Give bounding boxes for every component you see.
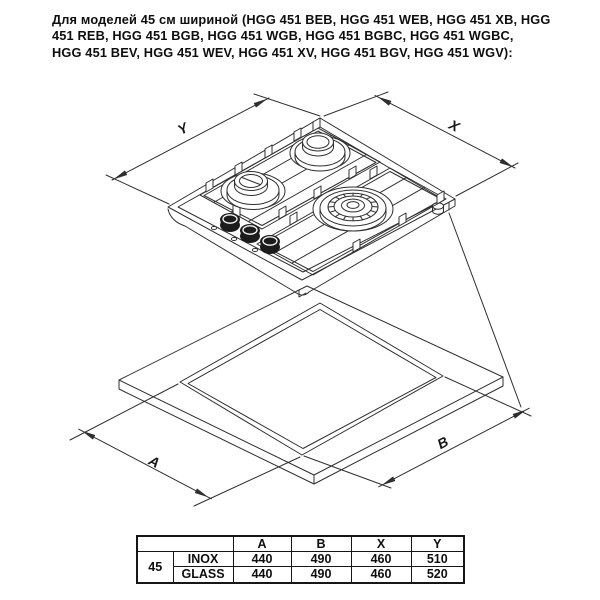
dimensions-table: A B X Y 45 INOX 440 490 460 510 GLASS 44…: [136, 535, 465, 584]
glass-x: 460: [351, 567, 411, 583]
table-row: GLASS 440 490 460 520: [137, 567, 464, 583]
installation-diagram: Y X A B: [0, 0, 600, 600]
dimension-label-x: X: [446, 116, 464, 136]
inox-y: 510: [411, 552, 464, 567]
dimension-label-b: B: [435, 433, 451, 452]
cutout: [180, 303, 443, 455]
manual-page: Для моделей 45 см шириной (HGG 451 BEB, …: [0, 0, 600, 600]
dimension-label-y: Y: [175, 119, 192, 138]
finish-cell-inox: INOX: [173, 552, 233, 567]
finish-cell-glass: GLASS: [173, 567, 233, 583]
glass-a: 440: [233, 567, 291, 583]
col-header-y: Y: [411, 536, 464, 552]
inox-x: 460: [351, 552, 411, 567]
table-row: 45 INOX 440 490 460 510: [137, 552, 464, 567]
inox-a: 440: [233, 552, 291, 567]
burner-wok: [320, 190, 386, 231]
glass-b: 490: [291, 567, 351, 583]
glass-y: 520: [411, 567, 464, 583]
table-corner-cell: [137, 536, 233, 552]
col-header-b: B: [291, 536, 351, 552]
dimension-line-a: [70, 384, 300, 506]
dimension-label-a: A: [145, 452, 162, 471]
col-header-x: X: [351, 536, 411, 552]
col-header-a: A: [233, 536, 291, 552]
size-cell: 45: [137, 552, 173, 583]
inox-b: 490: [291, 552, 351, 567]
